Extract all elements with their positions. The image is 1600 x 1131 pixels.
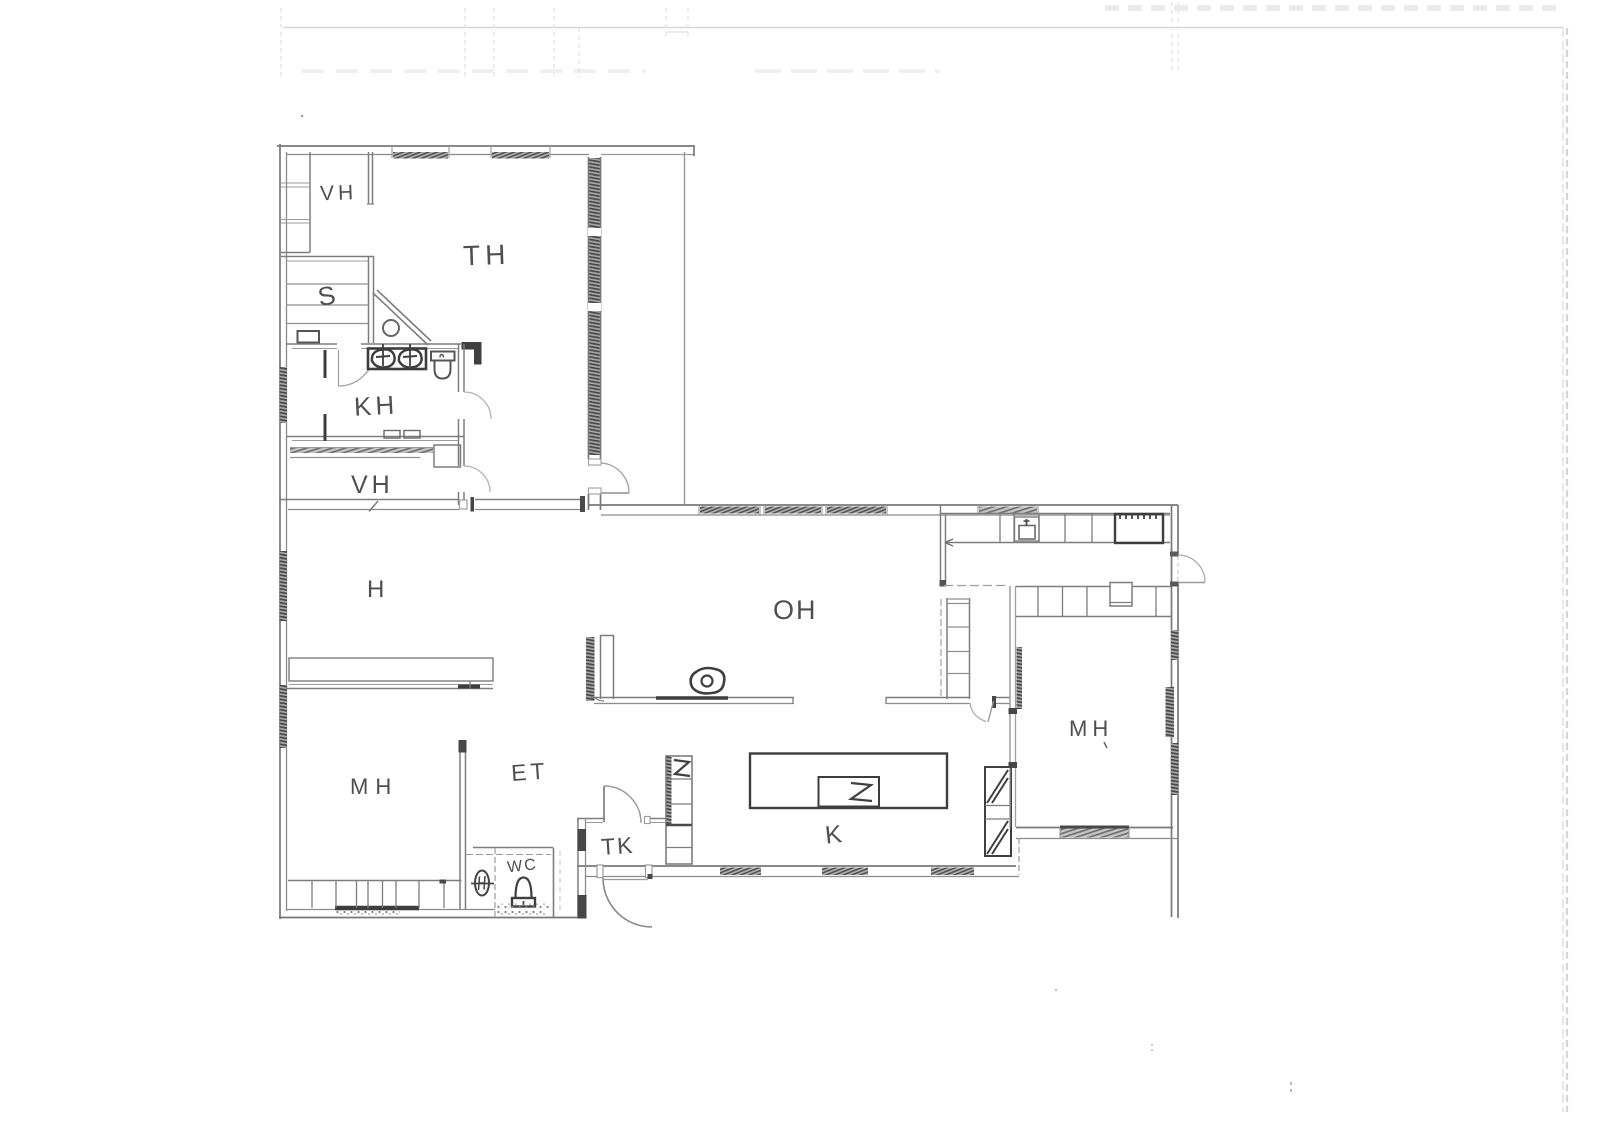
svg-text:VH: VH <box>351 471 394 499</box>
svg-text:ET: ET <box>510 757 549 786</box>
svg-text:K: K <box>824 820 844 850</box>
svg-text:TH: TH <box>462 239 510 272</box>
svg-text:WC: WC <box>506 856 538 876</box>
svg-text:TK: TK <box>600 832 635 860</box>
svg-text:OH: OH <box>773 595 818 625</box>
svg-text:MH: MH <box>1069 716 1113 741</box>
svg-text:KH: KH <box>353 389 399 421</box>
svg-text:MH: MH <box>350 774 398 799</box>
svg-text:H: H <box>367 576 384 603</box>
svg-text:VH: VH <box>320 181 358 205</box>
